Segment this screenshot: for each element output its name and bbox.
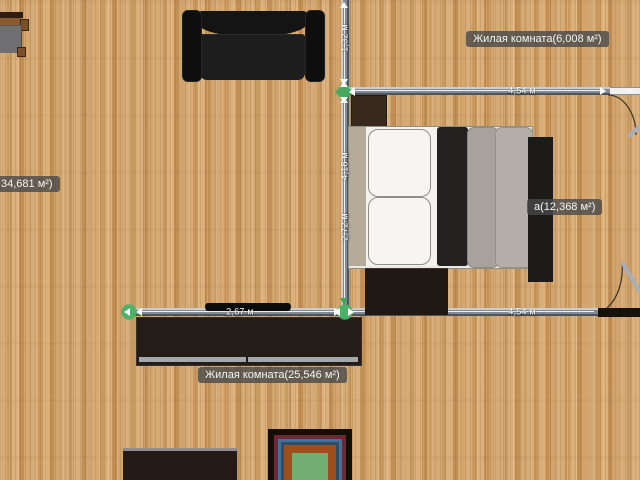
nightstand[interactable] [351, 95, 387, 129]
dim-line-vertical [344, 99, 345, 299]
dim-label-bottom-right: 4,54 м [508, 308, 535, 317]
dim-label-selected-wall: 2,67 м [226, 308, 253, 317]
sideboard-post-bottom [17, 47, 26, 57]
handle-arrow-left-icon [124, 308, 130, 316]
handle-arrow-right-icon [348, 308, 354, 316]
handle-arrow-up-icon [340, 82, 348, 87]
dim-line-top [352, 90, 602, 91]
tv-stand-door-right [248, 357, 358, 362]
floor-plan-canvas[interactable]: 4,54 м 4,54 м 2,67 м 4,18 м 2,72 м 1,32 … [0, 0, 640, 480]
wall-top[interactable] [346, 87, 610, 95]
dim-label-wall-lower: 2,72 м [341, 213, 350, 240]
dim-label-top-wall: 4,54 м [508, 87, 535, 96]
handle-arrow-left-icon [334, 308, 340, 316]
double-bed[interactable] [348, 126, 533, 269]
sideboard-shelf [0, 18, 21, 25]
handle-arrow-down-icon [340, 97, 348, 102]
sofa-armrest-left [182, 10, 202, 82]
door-swing-bottom[interactable] [604, 258, 640, 312]
rug[interactable] [268, 429, 352, 480]
room-label-left-partial: 34,681 м²) [0, 176, 60, 192]
bed-pillow-top [368, 129, 431, 197]
dim-arrow-up-icon [340, 2, 348, 8]
tv-stand-door-left [139, 357, 246, 362]
handle-arrow-left-icon [349, 88, 355, 96]
dim-label-wall-mid: 4,18 м [341, 152, 350, 179]
room-label-bedroom: а(12,368 м²) [527, 199, 602, 215]
rug-border-blue [278, 439, 342, 480]
rug-center [292, 453, 328, 480]
wardrobe[interactable] [365, 268, 448, 315]
sofa-armrest-right [305, 10, 325, 82]
door-swing-top[interactable] [606, 93, 640, 139]
sideboard[interactable] [0, 12, 28, 56]
cabinet[interactable] [123, 448, 237, 480]
tv-stand[interactable] [136, 317, 362, 366]
dim-arrow-right-icon [600, 87, 606, 95]
sofa-seat [200, 34, 305, 80]
room-label-living-top: Жилая комната(6,008 м²) [466, 31, 609, 47]
sofa[interactable] [182, 10, 323, 80]
bed-blanket-dark [437, 127, 468, 266]
rug-border-navy [281, 442, 339, 480]
dim-label-wall-upper: 1,32 м [341, 24, 350, 51]
rug-border-rust [284, 445, 336, 480]
bed-pillow-bottom [368, 197, 431, 265]
room-label-living-bottom: Жилая комната(25,546 м²) [198, 367, 347, 383]
rug-border-maroon [274, 435, 346, 480]
